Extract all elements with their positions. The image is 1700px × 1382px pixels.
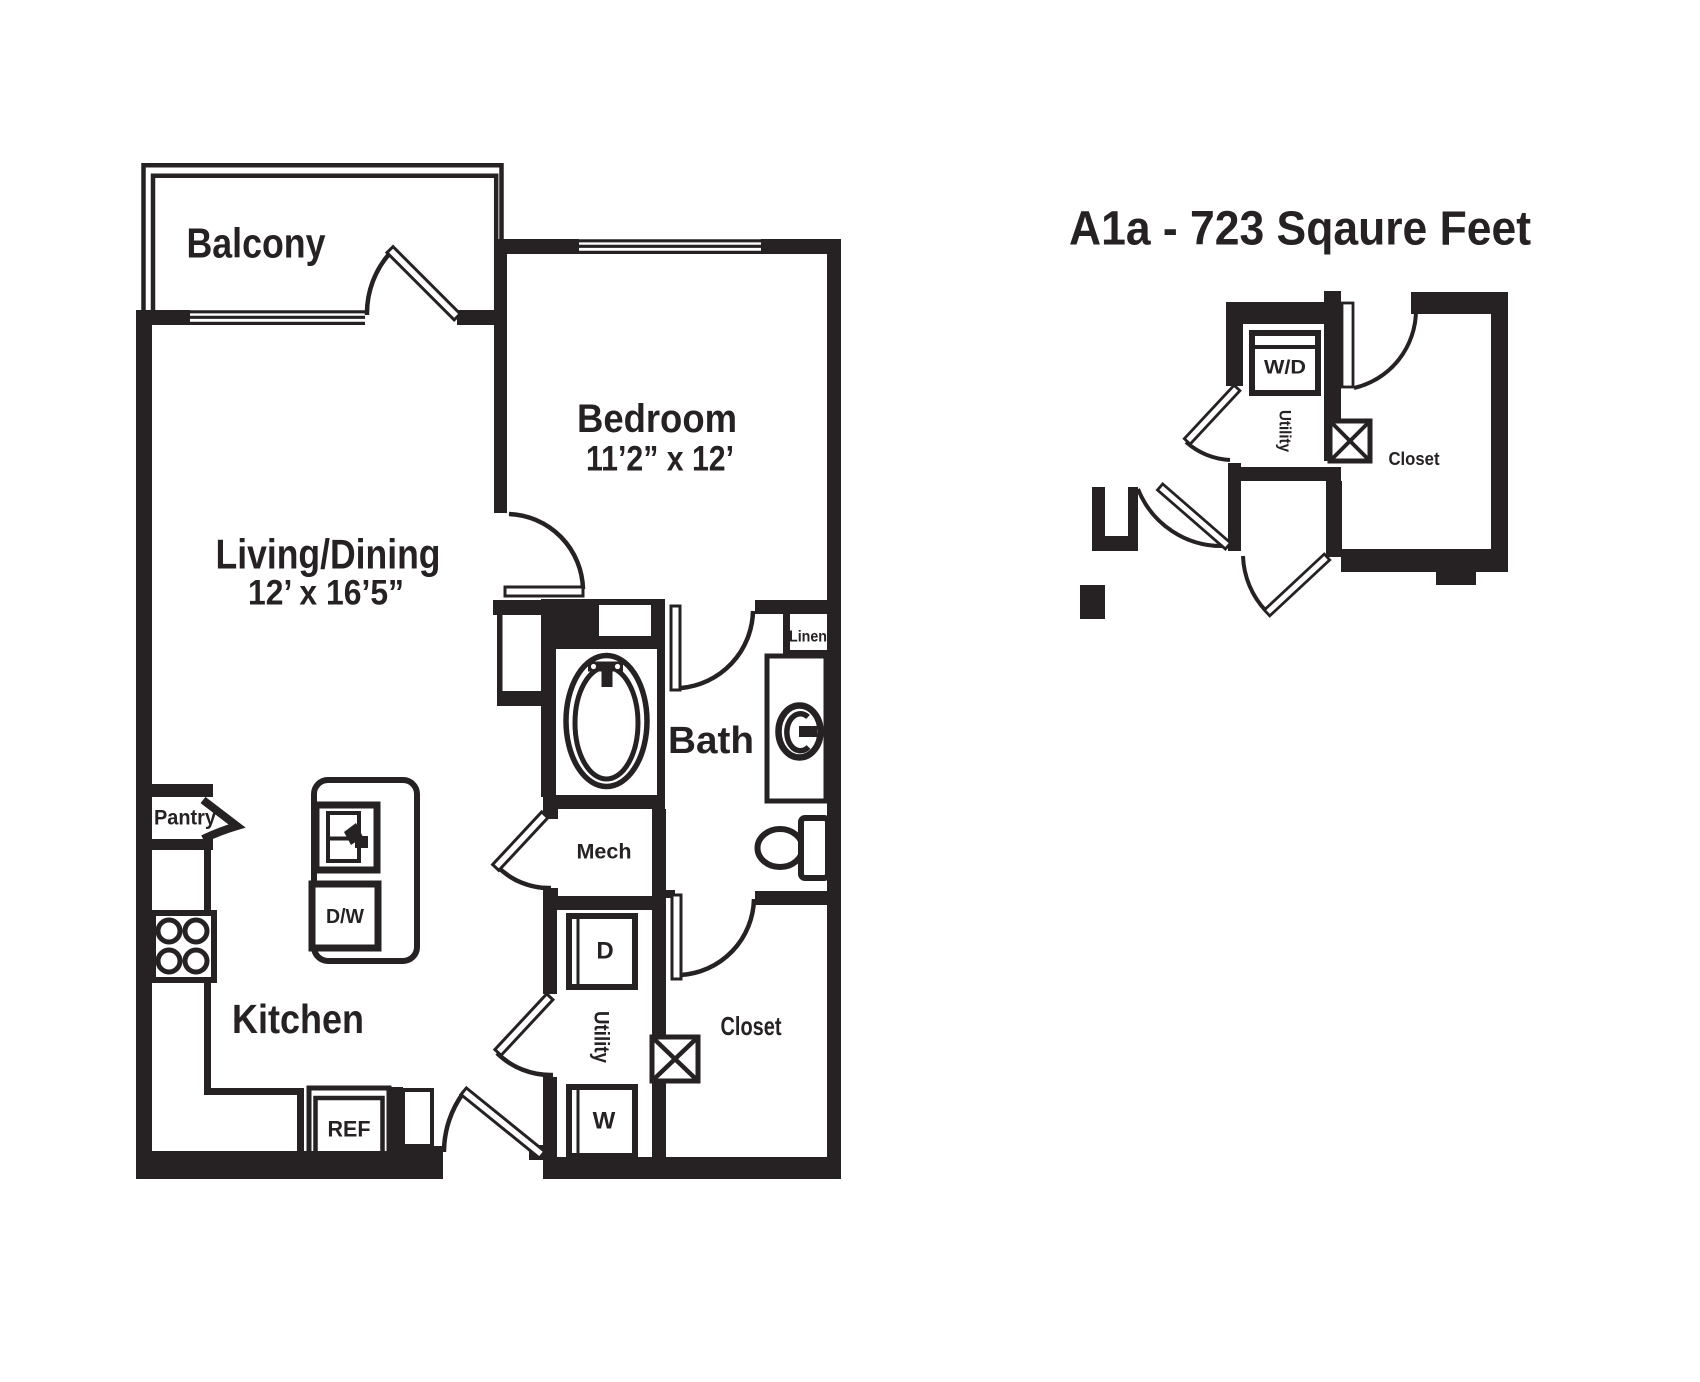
svg-text:Bedroom: Bedroom [577,397,737,441]
svg-text:Kitchen: Kitchen [232,996,364,1042]
svg-text:D: D [596,938,613,965]
svg-text:Closet: Closet [721,1011,782,1041]
svg-text:11’2” x 12’: 11’2” x 12’ [586,440,734,479]
svg-text:Balcony: Balcony [187,220,327,267]
svg-text:D/W: D/W [326,906,364,928]
svg-text:Closet: Closet [1389,449,1440,469]
svg-text:12’ x 16’5”: 12’ x 16’5” [248,574,404,613]
svg-text:Linen: Linen [789,629,827,646]
svg-text:Pantry: Pantry [154,807,216,830]
svg-text:Bath: Bath [668,720,754,762]
svg-text:Living/Dining: Living/Dining [216,531,441,578]
svg-text:A1a - 723 Sqaure Feet: A1a - 723 Sqaure Feet [1069,203,1531,256]
svg-text:Utility: Utility [1276,410,1295,452]
svg-text:W/D: W/D [1264,358,1306,379]
svg-text:REF: REF [328,1117,371,1142]
svg-text:W: W [593,1108,616,1135]
svg-text:Utility: Utility [590,1011,613,1063]
svg-text:Mech: Mech [577,841,632,864]
